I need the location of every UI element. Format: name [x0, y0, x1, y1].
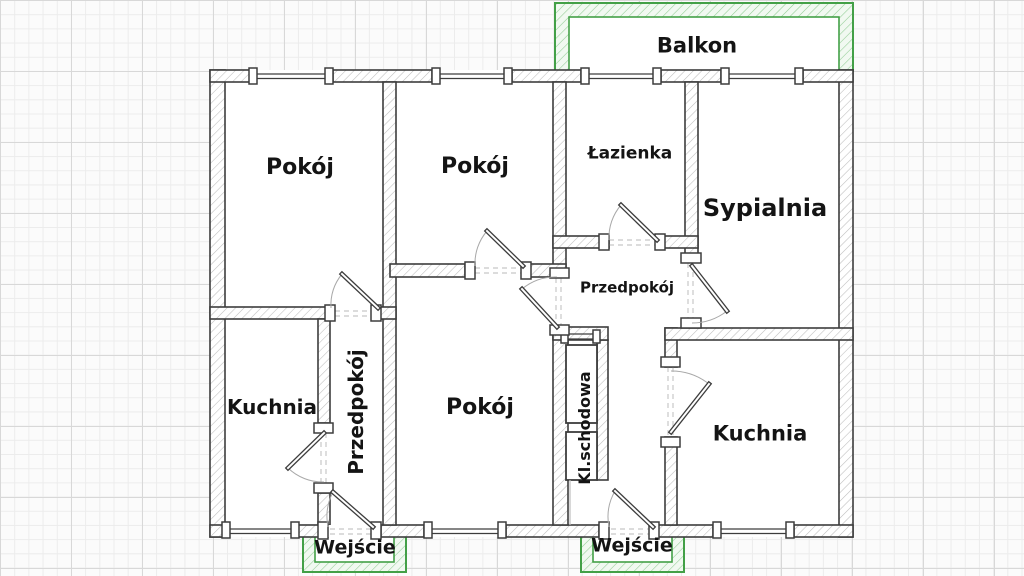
floor-plan-drawing	[0, 0, 1024, 576]
label-pokoj-top-middle: Pokój	[441, 156, 509, 178]
label-kuchnia-left: Kuchnia	[227, 397, 317, 417]
label-sypialnia: Sypialnia	[703, 196, 827, 220]
floor-plan-canvas: Balkon Pokój Pokój Łazienka Sypialnia Pr…	[0, 0, 1024, 576]
window-lazienka-balcony	[581, 68, 661, 84]
building-footprint	[210, 70, 853, 537]
label-kl-schodowa: Kl.schodowa	[577, 371, 593, 484]
window-pokoj-top-middle	[432, 68, 512, 84]
window-pokoj-top-left	[249, 68, 333, 84]
label-wejscie-bottom: Wejście	[591, 537, 673, 556]
label-lazienka: Łazienka	[588, 146, 673, 163]
label-pokoj-top-left: Pokój	[266, 157, 334, 179]
label-wejscie-left: Wejście	[314, 539, 396, 558]
label-balkon: Balkon	[657, 36, 737, 57]
window-sypialnia-balcony	[721, 68, 803, 84]
label-przedpokoj-corridor: Przedpokój	[346, 349, 366, 474]
label-kuchnia-right: Kuchnia	[713, 424, 808, 445]
label-pokoj-bottom: Pokój	[446, 397, 514, 419]
label-przedpokoj-central: Przedpokój	[580, 281, 674, 296]
